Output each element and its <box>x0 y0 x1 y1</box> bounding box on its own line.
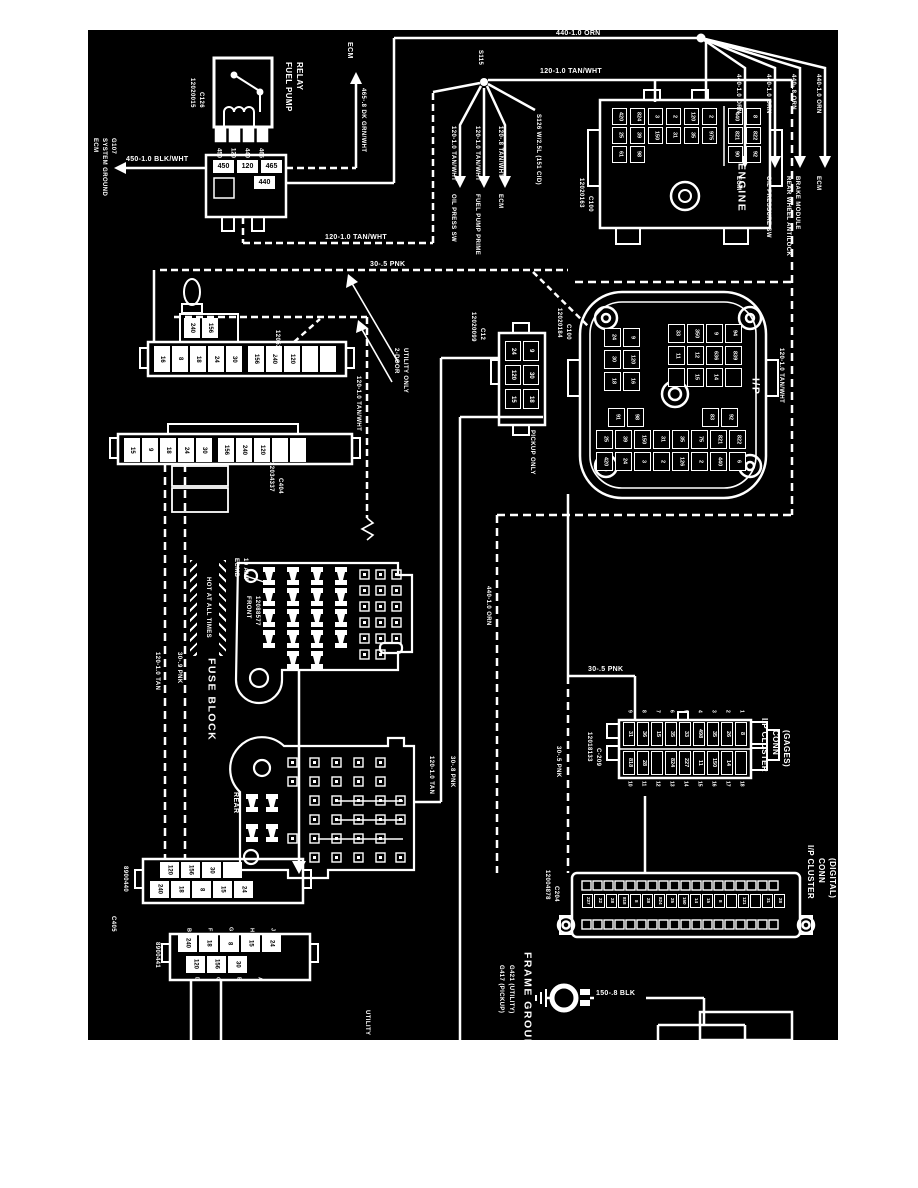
pin-cell: 14 <box>706 368 723 387</box>
branch3-wire-label: 120-.8 TAN/WHT <box>497 126 503 178</box>
ecm-ground-label-line2: SYSTEM GROUND <box>101 138 107 196</box>
pin-cell: 98 <box>630 146 645 163</box>
pin-cell: 150 <box>634 430 651 449</box>
pin-cell: 450 <box>213 160 234 173</box>
pin-cell: 11 <box>637 779 649 789</box>
gages-cells-bottom: 818288242271115014 <box>623 751 747 775</box>
pin-cell: 3 <box>634 452 651 471</box>
pin-cell: 98 <box>627 408 644 427</box>
pin-cell <box>272 438 288 462</box>
pin-cell: 12 <box>687 346 704 365</box>
c405a-row1: 12015630 <box>160 862 242 878</box>
ip-block-b-row1: 33350994 <box>668 324 742 343</box>
pin-cell: 90 <box>728 146 743 163</box>
fan1-wire-label: 440-1.0 ORN <box>735 74 741 114</box>
ip-block-c-row2: 420243212624406 <box>596 452 746 471</box>
pin-cell: 120 <box>237 160 258 173</box>
pin-cell: 975 <box>702 127 717 144</box>
c12-cells-row2: 12030 <box>505 365 539 385</box>
c405b-letters-top: BFGHJ <box>178 926 281 933</box>
fan3-dest-label-line2: BRAKE MODULE <box>794 176 800 230</box>
pin-cell <box>725 368 742 387</box>
pin-cell: 24 <box>234 881 253 898</box>
c404a-part-number: 12052469 <box>274 330 280 360</box>
pin-cell: 24 <box>505 341 521 361</box>
ecm-dest-label: ECM <box>346 42 353 59</box>
pin-cell: 150 <box>648 127 663 144</box>
fuse-block-rear-symbol <box>230 737 414 878</box>
pin-cell: 824 <box>654 894 665 908</box>
pin-cell: 24 <box>262 935 281 952</box>
pin-cell: 31 <box>762 894 773 908</box>
fan3-dest-label-line1: REAR WHEEL ANTILOCK <box>785 176 791 256</box>
pin-cell: 350 <box>687 324 704 343</box>
engine-connector-id: C100 <box>587 196 593 212</box>
pin-cell: 31 <box>653 430 670 449</box>
pin-cell: 33 <box>668 324 685 343</box>
pin-cell: 75 <box>691 430 708 449</box>
pin-cell: 92 <box>721 408 738 427</box>
pin-cell: 824 <box>665 751 677 775</box>
pin-cell: 15 <box>693 779 705 789</box>
pin-cell: 25 <box>612 127 627 144</box>
pin-cell: 30 <box>196 438 212 462</box>
wire-120-ip-label: 120-1.0 TAN/WHT <box>778 348 784 403</box>
pin-cell <box>320 346 336 372</box>
pin-cell: 35 <box>665 722 677 746</box>
pin-cell: 11 <box>668 346 685 365</box>
pin-cell: 16 <box>154 346 170 372</box>
fuel-pump-relay-label-line1: FUEL PUMP <box>284 62 292 112</box>
oil-press-sw-label: OIL PRESS SW <box>450 194 456 242</box>
c404b-cells-left: 159182430 <box>124 438 212 462</box>
pin-cell: A <box>249 975 268 982</box>
pin-cell: 9 <box>142 438 158 462</box>
pin-cell: 8 <box>172 346 188 372</box>
digital-title-line1: I/P CLUSTER <box>806 845 814 899</box>
ip-block-c-row1: 2539150313575821822 <box>596 430 746 449</box>
c12-cells-row1: 249 <box>505 341 539 361</box>
pin-cell <box>735 751 747 775</box>
fuel-pump-relay-symbol <box>214 58 272 141</box>
fan2-dest-label: OIL PRESSURE SW <box>765 176 771 238</box>
ip-block-b-row3: 1514 <box>668 368 742 387</box>
c405a-row2: 2401881524 <box>150 881 253 898</box>
pin-cell: 18 <box>171 881 190 898</box>
pin-cell: 150 <box>678 894 689 908</box>
pin-cell: 636 <box>706 346 723 365</box>
pin-cell: 120 <box>160 862 179 878</box>
pin-cell: 35 <box>707 722 719 746</box>
pin-cell: 15 <box>702 894 713 908</box>
pin-cell: 8 <box>735 722 747 746</box>
pin-cell: 120 <box>186 956 205 973</box>
ecm-ground-label-line3: G107 <box>110 138 116 154</box>
pin-cell: 465 <box>261 160 282 173</box>
c404a-cells-right: 156240120 <box>248 346 336 372</box>
pin-cell: 822 <box>729 430 746 449</box>
ecmb-fuse-label-line1: ECMB <box>233 558 239 577</box>
c404a-top-cells: 240156 <box>184 318 218 338</box>
utility-note-line2: UTILITY ONLY <box>402 348 408 393</box>
pin-cell: 839 <box>725 346 742 365</box>
pin-cell: 35 <box>684 127 699 144</box>
pin-cell: 25 <box>596 430 613 449</box>
c404a-connector-id: C404 <box>283 346 289 362</box>
pin-cell: 2 <box>691 452 708 471</box>
ip-block-b-row2: 1112636839 <box>668 346 742 365</box>
pin-cell: 8 <box>630 894 641 908</box>
pin-cell: 420 <box>596 452 613 471</box>
relay-connector-id: C126 <box>198 92 204 108</box>
wire-30-9-pnk-label: 30-.9 PNK <box>176 652 182 684</box>
pin-cell: 24 <box>178 438 194 462</box>
pin-cell: 156 <box>202 318 218 338</box>
c405b-letters-bottom: DCBA <box>186 975 268 982</box>
pin-cell: 15 <box>241 935 260 952</box>
pin-cell: 11 <box>693 751 705 775</box>
pin-cell: 824 <box>630 108 645 125</box>
branch2-wire-label: 120-1.0 TAN/WHT <box>474 126 480 181</box>
pin-cell: 9 <box>706 324 723 343</box>
pin-cell: 6 <box>665 706 677 716</box>
branch1-wire-label: 120-1.0 TAN/WHT <box>450 126 456 181</box>
ip-connector-id: C100 <box>565 324 571 340</box>
pin-cell: 9 <box>523 341 539 361</box>
pin-cell: 14 <box>690 894 701 908</box>
fan4-dest-label: ECM <box>815 176 821 191</box>
pin-cell: 24 <box>615 452 632 471</box>
pin-cell: 15 <box>213 881 232 898</box>
pin-cell: 120 <box>505 365 521 385</box>
pin-cell <box>651 751 663 775</box>
pin-cell: 1 <box>735 706 747 716</box>
fuse-block-label: FUSE BLOCK <box>206 658 217 741</box>
pin-cell: 240 <box>236 438 252 462</box>
pin-cell: 14 <box>679 779 691 789</box>
c405b-row2: 12015630 <box>186 956 247 973</box>
relay-part-number: 12020015 <box>189 78 195 108</box>
pin-cell: 821 <box>710 430 727 449</box>
pin-cell: 2 <box>653 452 670 471</box>
wiring-diagram-panel: FUEL PUMP RELAY 12020015 C126 4501204404… <box>88 30 838 1040</box>
pin-cell: 18 <box>735 779 747 789</box>
pin-cell: 498 <box>693 722 705 746</box>
fan2-wire-label: 440-1.0 ORN <box>765 74 771 114</box>
fuse-block-part-number: 12088577 <box>254 596 260 626</box>
c405a-part-number: 8900440 <box>122 866 128 892</box>
c12-part-number: 12020099 <box>470 312 476 342</box>
pin-cell: 120 <box>254 438 270 462</box>
pin-cell: 240 <box>184 318 200 338</box>
pin-cell: 227 <box>679 751 691 775</box>
pin-cell: 30 <box>604 350 621 369</box>
pin-cell: 156 <box>218 438 234 462</box>
pin-cell: 8 <box>714 894 725 908</box>
ip-label: I/P <box>750 378 761 395</box>
pin-cell: 18 <box>523 389 539 409</box>
pin-cell: 420 <box>612 108 627 125</box>
pin-cell: 28 <box>774 894 785 908</box>
utility-note-line1: 2-DOOR <box>393 348 399 374</box>
ground-id-line2: G421 (UTILITY) <box>508 965 514 1014</box>
pin-cell: 39 <box>630 127 645 144</box>
pin-cell: 818 <box>618 894 629 908</box>
wire-150-blk-label: 150-.8 BLK <box>596 990 635 997</box>
ecm-branch-label: ECM <box>497 194 503 209</box>
ip-part-number: 12020184 <box>556 308 562 338</box>
gages-title-line1: I/P CLUSTER <box>760 718 768 772</box>
pin-cell: 30 <box>202 862 221 878</box>
pin-cell: 126 <box>672 452 689 471</box>
pin-cell: 240 <box>178 935 197 952</box>
pin-cell: 39 <box>615 430 632 449</box>
pin-cell <box>290 438 306 462</box>
engine-pin-grid: 4202561 8243998 3150 231 12035 2975 4408… <box>612 108 761 163</box>
pin-cell: H <box>241 926 260 933</box>
digital-title-line3: (DIGITAL) <box>828 858 836 898</box>
pin-cell: 30 <box>226 346 242 372</box>
fuse-block-front-symbol <box>236 563 412 703</box>
c12-cells-row3: 1518 <box>505 389 539 409</box>
pin-cell: 5 <box>679 706 691 716</box>
pin-cell: 18 <box>199 935 218 952</box>
gages-pin-numbers-bottom: 101112131415161718 <box>623 779 747 789</box>
pin-cell: 2 <box>702 108 717 125</box>
pin-cell <box>223 862 242 878</box>
pin-cell <box>726 894 737 908</box>
ip-block-c-right: 8392 <box>702 408 738 427</box>
pin-cell: 440 <box>254 176 275 189</box>
pin-cell: 16 <box>623 372 640 391</box>
pin-cell: 16 <box>707 779 719 789</box>
pin-cell: G <box>220 926 239 933</box>
pin-cell: B <box>228 975 247 982</box>
ground-id-line1: G417 (PICKUP) <box>498 965 504 1013</box>
wire-120-main-label: 120-1.0 TAN/WHT <box>540 68 602 75</box>
frame-ground-label: FRAME GROUND <box>522 952 533 1040</box>
wire-120-label-horizontal: 120-1.0 TAN/WHT <box>325 234 387 241</box>
pin-cell: 33 <box>679 722 691 746</box>
pin-cell: 7 <box>651 706 663 716</box>
pin-cell: 120 <box>623 350 640 369</box>
pin-cell: C <box>207 975 226 982</box>
fan3-wire-label: 440-.8 ORN <box>790 74 796 110</box>
wire-30-pnk-label: 30-.5 PNK <box>370 261 405 268</box>
pin-cell: 28 <box>606 894 617 908</box>
pin-cell: 227 <box>582 894 593 908</box>
pin-cell: 25 <box>666 894 677 908</box>
wire-30-8-pnk-label: 30-.8 PNK <box>449 756 455 788</box>
pin-cell: 4 <box>693 706 705 716</box>
wire-120-utility-label: 120-1.0 TAN/WHT <box>355 376 361 431</box>
pin-cell: 31 <box>666 127 681 144</box>
c405a-connector-id: C405 <box>110 916 116 932</box>
gages-title-line2: CONN <box>771 730 779 755</box>
relay-connector-cells: 450120465 <box>213 160 282 173</box>
ip-block-c-left: 9198 <box>608 408 644 427</box>
pin-cell: 15 <box>651 722 663 746</box>
pin-cell: 2 <box>666 108 681 125</box>
rear-label: REAR <box>232 792 239 813</box>
gages-part-number: 12018133 <box>586 732 592 762</box>
pin-cell: D <box>186 975 205 982</box>
c405b-row1: 2401881524 <box>178 935 281 952</box>
pin-cell: 30 <box>228 956 247 973</box>
pin-cell: B <box>178 926 197 933</box>
wire-120-tan-mid-label: 120-1.0 TAN <box>428 756 434 794</box>
pin-cell: 150 <box>707 751 719 775</box>
pin-cell: F <box>199 926 218 933</box>
fuel-pump-relay-label-line2: RELAY <box>295 62 303 90</box>
pin-cell <box>750 894 761 908</box>
pin-cell: 821 <box>728 127 743 144</box>
pin-cell: 30 <box>523 365 539 385</box>
pin-cell: 10 <box>623 779 635 789</box>
pin-cell: 15 <box>505 389 521 409</box>
ip-block-a-row1: 249 <box>604 328 640 347</box>
digital-title-line2: CONN <box>817 858 825 883</box>
pin-cell: 240 <box>150 881 169 898</box>
wire-30-5-pnk-v-label: 30-.5 PNK <box>555 746 561 778</box>
pin-cell: 156 <box>248 346 264 372</box>
pin-cell: 8 <box>746 108 761 125</box>
pin-cell: 6 <box>729 452 746 471</box>
relay-connector-cell-440: 440 <box>254 176 275 189</box>
pin-cell: 13 <box>665 779 677 789</box>
pin-cell: 17 <box>721 779 733 789</box>
pin-cell: 121 <box>738 894 749 908</box>
ip-block-a-row3: 1816 <box>604 372 640 391</box>
pin-cell: 24 <box>208 346 224 372</box>
splice-s115-label: S115 <box>477 50 483 65</box>
fuse-block-front-label: FRONT <box>245 596 251 619</box>
pin-cell: 83 <box>702 408 719 427</box>
pin-cell: 3 <box>707 706 719 716</box>
pin-cell: 26 <box>721 722 733 746</box>
wire-465-label: 465-.8 DK GRN/WHT <box>360 88 366 152</box>
pin-cell <box>302 346 318 372</box>
digital-part-number: 12004878 <box>544 870 550 900</box>
fan1-dest-label: ECM <box>735 176 741 191</box>
pin-cell: 120 <box>684 108 699 125</box>
digital-connector-id: C204 <box>553 886 559 902</box>
gages-pin-numbers-top: 987654321 <box>623 706 747 716</box>
hot-at-all-times-note: HOT AT ALL TIMES <box>190 560 226 656</box>
pin-cell: 818 <box>623 751 635 775</box>
pin-cell: 14 <box>721 751 733 775</box>
pin-cell: 3 <box>648 108 663 125</box>
pin-cell: 22 <box>594 894 605 908</box>
pin-cell: 24 <box>604 328 621 347</box>
s126-note-label: S126 W/2.5L (151 CID) <box>535 114 541 185</box>
pin-cell: 156 <box>207 956 226 973</box>
fan4-wire-label: 440-1.0 ORN <box>815 74 821 114</box>
pin-cell: 35 <box>672 430 689 449</box>
pickup-only-note: PICKUP ONLY <box>529 430 535 475</box>
pin-cell: 36 <box>637 722 649 746</box>
c404a-cells-left: 168182430 <box>154 346 242 372</box>
pin-cell: 9 <box>623 328 640 347</box>
pin-cell: 18 <box>190 346 206 372</box>
engine-part-number: 12020163 <box>578 178 584 208</box>
wire-120-tan-label: 120-1.0 TAN <box>154 652 160 690</box>
pin-cell: 822 <box>746 127 761 144</box>
pin-cell: 9 <box>623 706 635 716</box>
c404b-part-number: 12034337 <box>268 462 274 492</box>
ecm-ground-label-line1: ECM <box>92 138 98 153</box>
pin-cell: 8 <box>192 881 211 898</box>
pin-cell: 91 <box>608 408 625 427</box>
wire-450-label: 450-1.0 BLK/WHT <box>126 156 188 163</box>
wire-440-top-label: 440-1.0 ORN <box>556 30 601 37</box>
pin-cell: 18 <box>160 438 176 462</box>
ecmb-fuse-label-line2: 10 AMP <box>242 558 248 582</box>
ip-block-a-row2: 30120 <box>604 350 640 369</box>
pin-cell: 61 <box>612 146 627 163</box>
pin-cell: 15 <box>687 368 704 387</box>
pin-cell <box>668 368 685 387</box>
c404b-connector-id: C404 <box>277 478 283 494</box>
c404b-cells-right: 156240120 <box>218 438 306 462</box>
pin-cell: J <box>262 926 281 933</box>
fuel-pump-prime-label: FUEL PUMP PRIME <box>474 194 480 255</box>
pin-cell: 31 <box>623 722 635 746</box>
pin-cell: 8 <box>220 935 239 952</box>
pin-cell: 92 <box>746 146 761 163</box>
pin-cell: 8 <box>637 706 649 716</box>
pin-cell: 440 <box>710 452 727 471</box>
gages-title-line3: (GAGES) <box>782 730 790 767</box>
pin-cell: 28 <box>637 751 649 775</box>
pin-cell: 94 <box>725 324 742 343</box>
frame-ground-symbol <box>536 986 590 1010</box>
pin-cell: 15 <box>124 438 140 462</box>
digital-cells: 227222881882882425150141581213128 <box>582 894 785 908</box>
pin-cell: 18 <box>604 372 621 391</box>
wire-30-5-pnk-h-label: 30-.5 PNK <box>588 666 623 673</box>
c12-connector-id: C12 <box>479 328 485 340</box>
pin-cell: 28 <box>642 894 653 908</box>
utility-bottom-note: UTILITY <box>364 1010 370 1035</box>
pin-cell: 2 <box>721 706 733 716</box>
wire-440-mid-label: 440-1.0 ORN <box>485 586 491 626</box>
gages-cells-top: 313615353349835268 <box>623 722 747 746</box>
pin-cell: 12 <box>651 779 663 789</box>
gages-connector-id: C-209 <box>595 748 601 766</box>
pin-cell: 156 <box>181 862 200 878</box>
c405b-part-number: 8900441 <box>154 942 160 968</box>
